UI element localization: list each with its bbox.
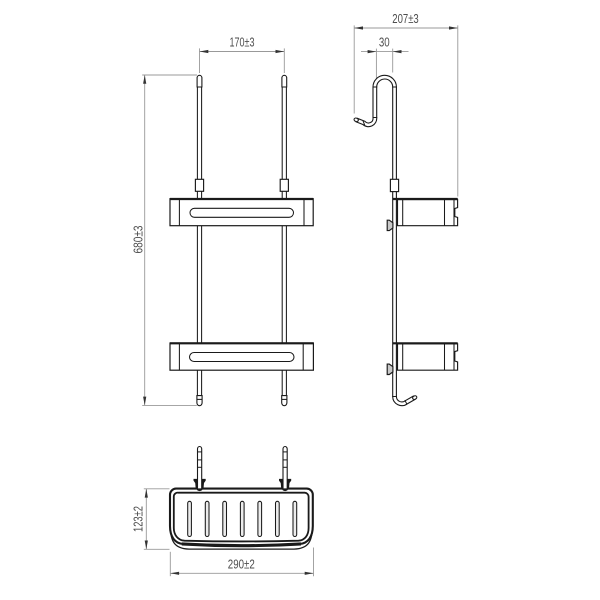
svg-text:680±3: 680±3 xyxy=(130,226,145,254)
svg-text:207±3: 207±3 xyxy=(392,11,419,26)
svg-text:30: 30 xyxy=(379,34,390,49)
svg-text:290±2: 290±2 xyxy=(228,557,255,572)
svg-text:170±3: 170±3 xyxy=(230,34,255,49)
svg-text:123±2: 123±2 xyxy=(131,506,146,532)
